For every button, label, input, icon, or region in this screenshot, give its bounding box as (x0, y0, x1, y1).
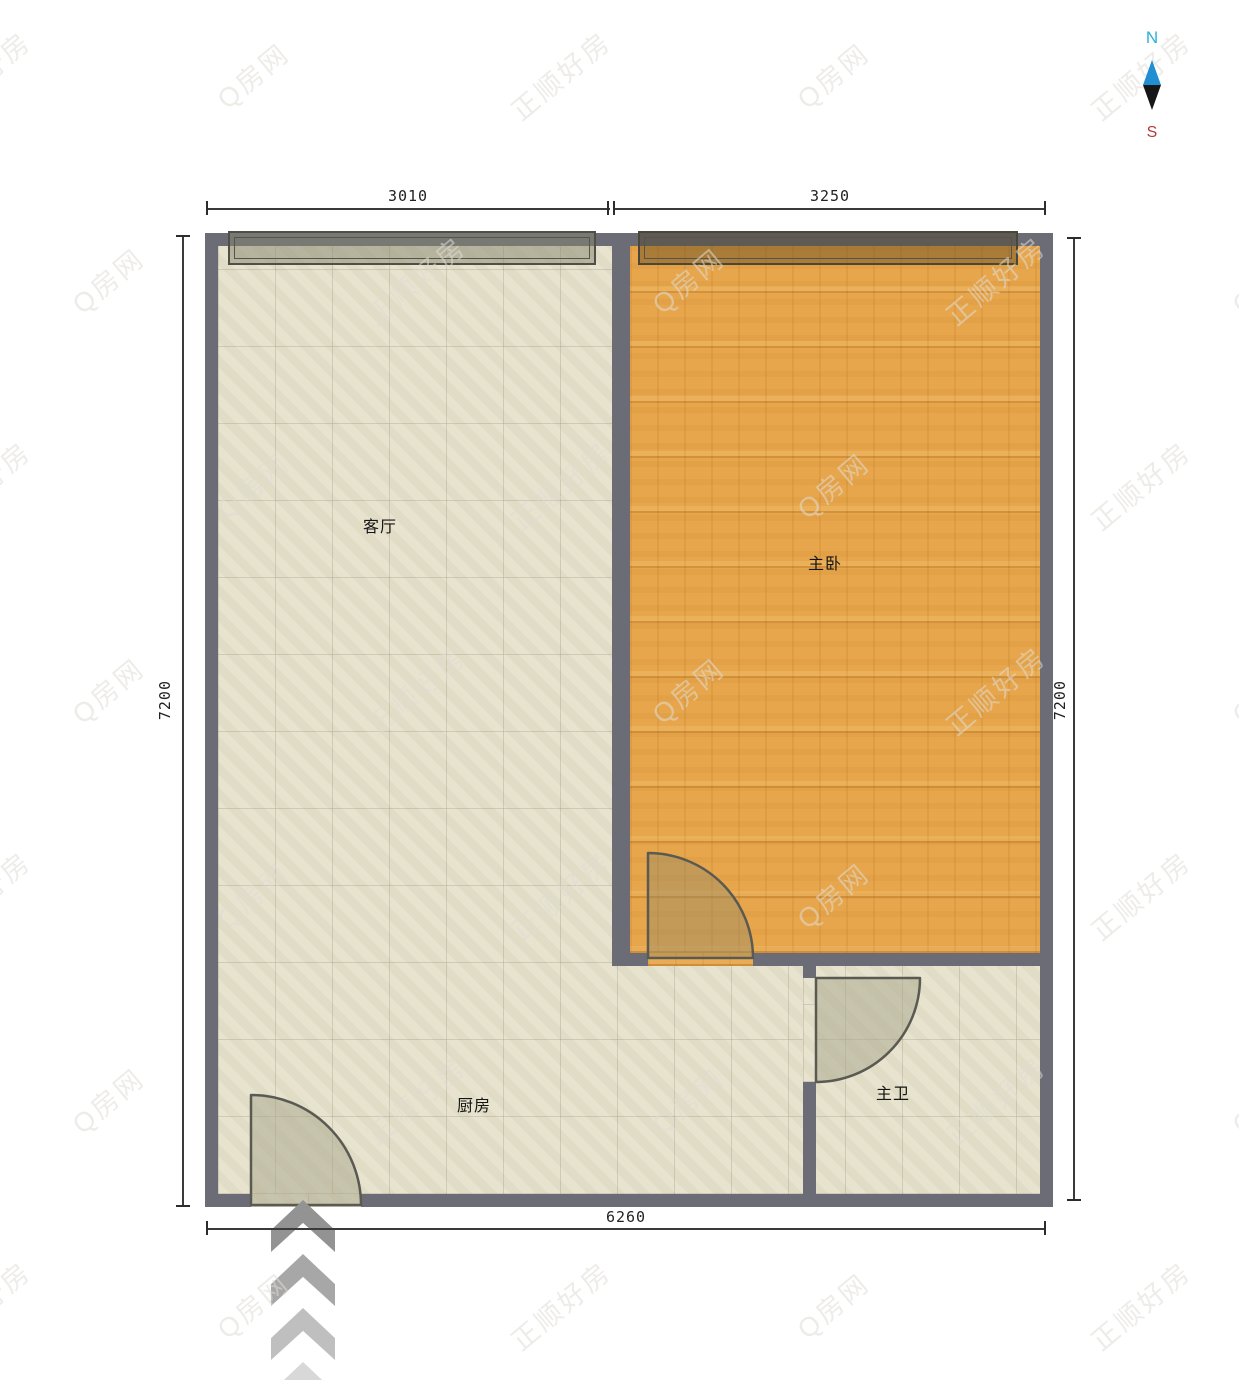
compass-needle-north-icon (1143, 60, 1161, 85)
room-label-living: 客厅 (363, 513, 397, 537)
watermark-text: Q房网 (62, 238, 151, 322)
entrance-arrow (271, 1200, 335, 1380)
watermark-text: Q房网 (1222, 1058, 1239, 1142)
compass-south-label: S (1141, 124, 1163, 142)
watermark-text: Q房网 (1222, 648, 1239, 732)
watermark-text: 正顺好房 (502, 1251, 619, 1358)
watermark-text: 正顺好房 (0, 841, 38, 948)
dim-label-right: 7200 (1051, 680, 1069, 720)
dim-tick (613, 201, 615, 215)
dim-tick (176, 1205, 190, 1207)
wall-bedroom-bottom-right (753, 953, 1053, 966)
chevron-up-icon (271, 1362, 335, 1380)
window-living-room (228, 231, 596, 265)
dim-line-top-right (614, 208, 1045, 210)
window-bedroom-inner-frame (644, 237, 1012, 259)
dim-label-top-left: 3010 (308, 187, 508, 205)
dim-label-bottom: 6260 (526, 1208, 726, 1226)
dim-line-top-left (207, 208, 610, 210)
compass-needle-south-icon (1143, 85, 1161, 110)
dim-label-left: 7200 (156, 680, 174, 720)
room-label-bathroom: 主卫 (876, 1080, 910, 1104)
room-label-kitchen: 厨房 (457, 1092, 491, 1116)
chevron-up-icon (271, 1308, 335, 1360)
wall-bathroom-lower (803, 1082, 816, 1194)
dim-label-top-right: 3250 (730, 187, 930, 205)
wall-bathroom-upper (803, 953, 816, 978)
wall-bottom-main-segment (361, 1194, 1053, 1207)
dim-tick (176, 235, 190, 237)
watermark-text: 正顺好房 (1082, 431, 1199, 538)
compass-north-label: N (1140, 28, 1164, 48)
wall-left (205, 233, 218, 1207)
wall-bottom-left-segment (205, 1194, 251, 1207)
watermark-text: 正顺好房 (1082, 841, 1199, 948)
dim-tick (607, 201, 609, 215)
watermark-text: 正顺好房 (0, 431, 38, 538)
room-label-bedroom: 主卧 (808, 550, 842, 574)
dim-tick (206, 201, 208, 215)
dim-tick (1067, 237, 1081, 239)
watermark-text: Q房网 (787, 33, 876, 117)
dim-tick (1044, 1221, 1046, 1235)
dim-tick (206, 1221, 208, 1235)
chevron-up-icon (271, 1200, 335, 1252)
dim-line-left (182, 236, 184, 1207)
watermark-text: 正顺好房 (0, 1251, 38, 1358)
dim-tick (1067, 1199, 1081, 1201)
wall-bedroom-bottom-left (612, 953, 648, 966)
floor-bedroom (630, 246, 1040, 953)
threshold-bathroom-door (803, 978, 816, 1082)
floorplan-canvas: 客厅 主卧 厨房 主卫 3010 3250 7200 7200 6260 N S… (0, 0, 1239, 1380)
dim-line-bottom (207, 1228, 1045, 1230)
watermark-text: 正顺好房 (502, 21, 619, 128)
watermark-text: Q房网 (62, 648, 151, 732)
wall-living-bedroom-divider (612, 233, 630, 966)
threshold-bedroom-door (648, 953, 753, 966)
watermark-text: Q房网 (207, 33, 296, 117)
dim-tick (1044, 201, 1046, 215)
chevron-up-icon (271, 1254, 335, 1306)
watermark-text: Q房网 (1222, 238, 1239, 322)
dim-line-right (1073, 238, 1075, 1200)
watermark-text: Q房网 (787, 1263, 876, 1347)
watermark-text: Q房网 (62, 1058, 151, 1142)
window-bedroom (638, 231, 1018, 265)
watermark-text: 正顺好房 (1082, 1251, 1199, 1358)
window-living-room-inner-frame (234, 237, 590, 259)
watermark-text: 正顺好房 (0, 21, 38, 128)
